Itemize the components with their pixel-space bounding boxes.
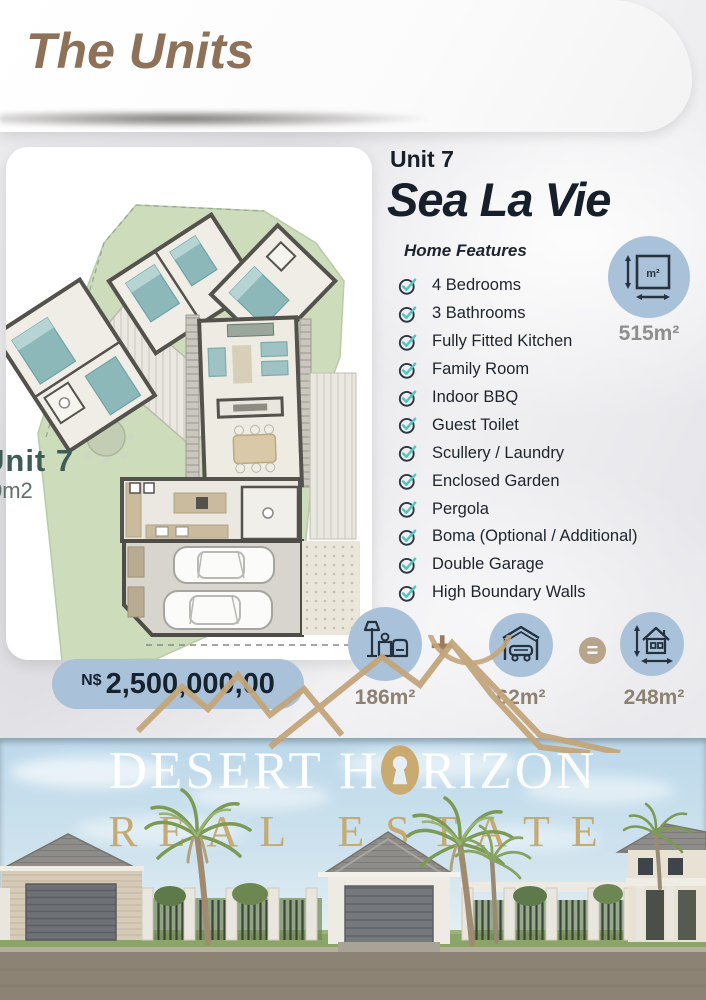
brochure-page: The Units	[0, 0, 706, 1000]
stand-size-value: 515m²	[608, 322, 690, 346]
check-icon	[398, 471, 418, 491]
feature-item: Pergola	[398, 495, 698, 523]
garage-area-value: 62m²	[484, 686, 558, 710]
car-2	[164, 591, 272, 629]
check-icon	[398, 527, 418, 547]
garage-icon	[498, 622, 544, 668]
house-measure-icon	[628, 620, 676, 668]
title-underline-shadow	[0, 111, 430, 128]
garage-door-left	[26, 884, 116, 940]
unit-number: Unit 7	[390, 146, 454, 173]
driveway	[302, 541, 360, 635]
feature-label: Enclosed Garden	[432, 472, 560, 491]
kitchen-block	[122, 479, 300, 541]
houses-scene	[0, 738, 706, 1000]
check-icon	[398, 304, 418, 324]
check-icon	[398, 415, 418, 435]
feature-label: Guest Toilet	[432, 416, 519, 435]
check-icon	[398, 555, 418, 575]
fence-left	[142, 883, 322, 940]
car-1	[174, 547, 274, 583]
svg-text:m²: m²	[646, 268, 660, 280]
check-icon	[398, 583, 418, 603]
fence-right	[460, 882, 640, 940]
feature-label: Boma (Optional / Additional)	[432, 527, 637, 546]
road	[0, 947, 706, 1000]
living-block	[199, 317, 302, 488]
feature-label: Double Garage	[432, 555, 544, 574]
check-icon	[398, 360, 418, 380]
floor-plan-card	[6, 147, 372, 660]
features-heading: Home Features	[404, 241, 527, 261]
garage-area-badge	[489, 613, 553, 677]
plus-operator: +	[430, 622, 455, 670]
feature-item: High Boundary Walls	[398, 579, 698, 607]
garage-door-center	[345, 886, 433, 944]
feature-item: Family Room	[398, 356, 698, 384]
house-left	[0, 834, 144, 940]
check-icon	[398, 276, 418, 296]
feature-label: Indoor BBQ	[432, 388, 518, 407]
feature-label: High Boundary Walls	[432, 583, 585, 602]
feature-item: Enclosed Garden	[398, 467, 698, 495]
feature-label: Pergola	[432, 500, 489, 519]
feature-label: Fully Fitted Kitchen	[432, 332, 572, 351]
check-icon	[398, 388, 418, 408]
price-amount: 2,500,000,00	[106, 668, 275, 701]
stand-size-badge: m²	[608, 236, 690, 318]
floor-plan-drawing	[6, 147, 372, 660]
street-render-photo: DESERT HRIZON REAL ESTATE	[0, 738, 706, 1000]
equals-operator: =	[579, 637, 606, 664]
price-currency: N$	[81, 672, 101, 690]
check-icon	[398, 443, 418, 463]
plan-unit-label: Unit 7	[0, 443, 74, 479]
feature-item: Guest Toilet	[398, 411, 698, 439]
total-area-badge	[620, 612, 684, 676]
feature-label: 4 Bedrooms	[432, 276, 521, 295]
feature-item: Boma (Optional / Additional)	[398, 523, 698, 551]
house-right	[618, 824, 706, 942]
house-area-value: 186m²	[348, 686, 422, 710]
feature-label: Family Room	[432, 360, 529, 379]
feature-item: Double Garage	[398, 551, 698, 579]
garage-block	[124, 541, 302, 635]
house-center	[318, 832, 460, 952]
house-area-badge	[348, 607, 422, 681]
dining-table	[233, 434, 276, 463]
check-icon	[398, 332, 418, 352]
feature-label: 3 Bathrooms	[432, 304, 526, 323]
plan-area-label: 0m2	[0, 478, 33, 504]
feature-label: Scullery / Laundry	[432, 444, 564, 463]
unit-name: Sea La Vie	[387, 172, 610, 227]
page-title: The Units	[26, 22, 254, 80]
feature-item: Indoor BBQ	[398, 384, 698, 412]
total-area-value: 248m²	[614, 686, 694, 710]
price-pill: N$ 2,500,000,00	[52, 659, 304, 709]
square-meter-icon: m²	[620, 248, 678, 306]
feature-item: Scullery / Laundry	[398, 439, 698, 467]
check-icon	[398, 499, 418, 519]
furniture-icon	[359, 618, 411, 670]
